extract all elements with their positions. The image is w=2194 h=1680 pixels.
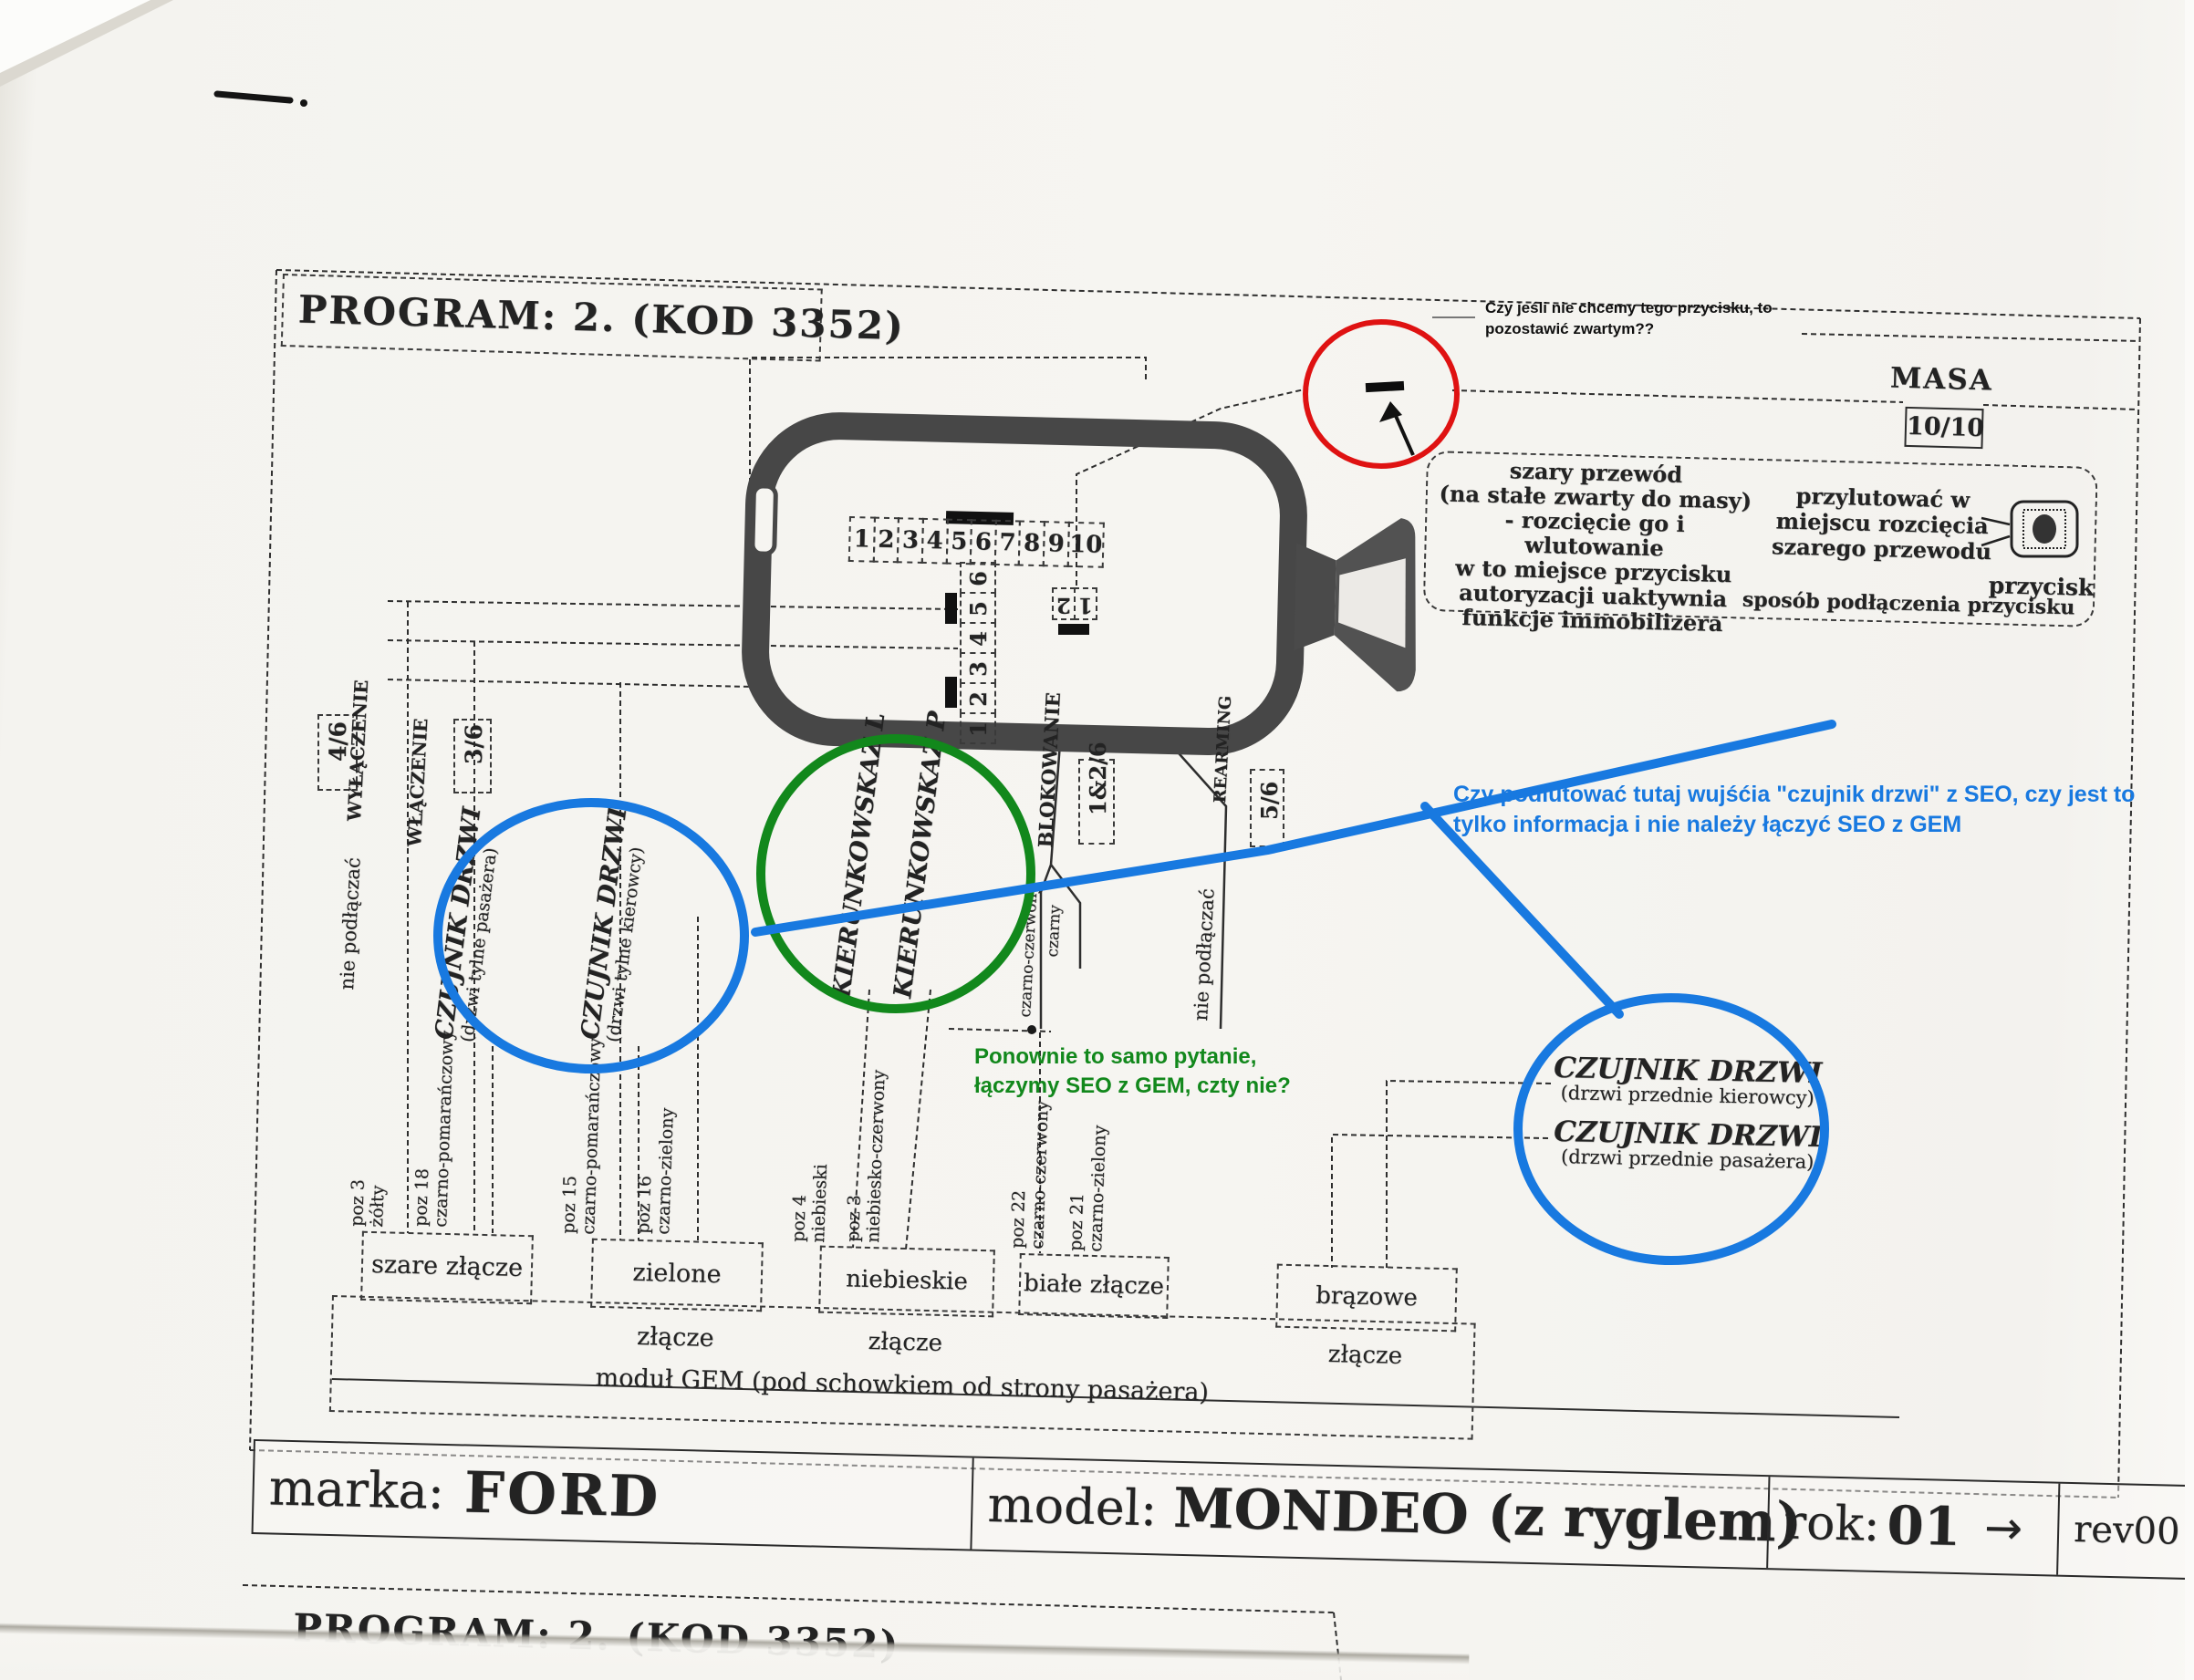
wlaczenie-pin: 3/6: [461, 724, 487, 764]
rearming-pin-box: 5/6: [1250, 769, 1284, 847]
rearming-pin: 5/6: [1256, 782, 1283, 820]
pin-cell: 1: [960, 712, 996, 744]
rev-cell: rev00: [2056, 1484, 2191, 1578]
wire-pos-label: poz 22 czarno-czerwony: [1007, 1100, 1053, 1250]
green-note: Ponownie to samo pytanie, łączymy SEO z …: [974, 1042, 1291, 1101]
connector-box-niebieskie: niebieskie złącze: [818, 1246, 995, 1318]
marka-label: marka:: [268, 1458, 445, 1520]
wire-h2: [388, 640, 958, 648]
info-box: szary przewód (na stałe zwarty do masy) …: [1423, 451, 2098, 627]
rok-arrow-icon: →: [1983, 1501, 2022, 1555]
wire-h1: [388, 601, 958, 609]
czarny-label: czarny: [1044, 905, 1065, 958]
front-driver-door-sensor-label: CZUJNIK DRZWI (drzwi przednie kierowcy): [1541, 1053, 1834, 1110]
model-cell: model: MONDEO (z ryglem): [970, 1458, 1768, 1569]
wire-masa-1: [1452, 390, 1903, 402]
model-label: model:: [987, 1475, 1158, 1536]
info-left-text: szary przewód (na stałe zwarty do masy) …: [1433, 456, 1755, 636]
frame-left-line: [250, 270, 276, 1450]
pin6-key-tab-2: [945, 677, 957, 708]
pin-cell: 5: [945, 519, 972, 565]
pen-mark-dot: [300, 99, 307, 107]
frame-right-line: [2118, 318, 2140, 1498]
info-right-text: przylutować w miejscu rozcięcia szarego …: [1762, 482, 2002, 565]
front-passenger-door-sensor-label: CZUJNIK DRZWI (drzwi przednie pasażera): [1541, 1117, 1834, 1174]
rev-value: rev00: [2074, 1509, 2180, 1553]
marka-cell: marka: FORD: [254, 1441, 972, 1549]
wire-pos-label: poz 3 niebiesko-czerwony: [843, 1069, 889, 1243]
pin-cell: 7: [994, 520, 1022, 566]
connector-2pin: 2 1: [1054, 587, 1097, 620]
wire-pos-label: poz 18 czarno-pomarańczowy: [411, 1030, 458, 1228]
pin2-key-tab: [1058, 624, 1089, 635]
scanned-wiring-diagram-page: PROGRAM: 2. (KOD 3352) MASA 10/10 szary …: [0, 0, 2194, 1680]
program-header-text: PROGRAM: 2. (KOD 3352): [297, 286, 905, 348]
pin-cell: 2: [1052, 587, 1076, 620]
wire-v8: [906, 990, 931, 1250]
pin-cell: 1: [1074, 587, 1097, 620]
pin-cell: 1: [848, 516, 876, 563]
pin-cell: 2: [872, 517, 899, 564]
wlaczenie-pin-box: 3/6: [453, 719, 492, 793]
module-notch: [753, 486, 776, 555]
page-right-edge: [2185, 0, 2194, 1680]
blokowanie-pin: 1&2/6: [1085, 741, 1111, 815]
pin-cell: 5: [960, 592, 996, 624]
masa-label: MASA: [1890, 362, 1994, 398]
gem-module-label: moduł GEM (pod schowkiem od strony pasaż…: [332, 1357, 1472, 1414]
connector-box-biale: białe złącze: [1018, 1253, 1170, 1319]
rok-value: 01: [1887, 1494, 1961, 1558]
wire-pos-label: poz 21 czarno-zielony: [1066, 1125, 1110, 1252]
connector-6pin: 6 5 4 3 2 1: [960, 564, 996, 744]
program-header-box: PROGRAM: 2. (KOD 3352): [281, 274, 823, 361]
model-value: MONDEO (z ryglem): [1172, 1477, 1803, 1555]
pin-cell: 8: [1018, 521, 1045, 567]
wire-masa-2: [1983, 405, 2138, 410]
wire-pos-label: poz 3 żółty: [347, 1179, 389, 1228]
marka-value: FORD: [463, 1458, 661, 1530]
top-right-line: [1802, 334, 2140, 341]
leader-front-driver: [1387, 1081, 1551, 1268]
wire-junction-dot: [1027, 1025, 1036, 1034]
pin6-key-tab-1: [945, 593, 957, 624]
masa-pin-box: 10/10: [1904, 407, 1983, 449]
blue-note: Czy podlutować tutaj wujśćia "czujnik dr…: [1453, 780, 2135, 840]
connector-box-zielone: zielone złącze: [590, 1239, 764, 1312]
alarm-module-outline: [748, 424, 1421, 747]
pin-cell: 4: [921, 518, 949, 565]
black-note: Czy jeśli nie chcemy tego przycisku, to …: [1485, 297, 1773, 339]
wire-pos-label: poz 16 czarno-zielony: [633, 1107, 678, 1235]
connector-10pin: 1 2 3 4 5 6 7 8 9 10: [850, 516, 1105, 568]
pin-cell: 9: [1043, 521, 1070, 567]
masa-pin: 10/10: [1907, 412, 1985, 442]
pin-cell: 10: [1066, 522, 1104, 568]
wire-h3: [388, 679, 754, 687]
blokowanie-pin-box: 1&2/6: [1078, 759, 1115, 845]
pin-cell: 3: [897, 517, 924, 564]
module-horn-neck: [1294, 543, 1336, 651]
leader-front-passenger: [1332, 1135, 1548, 1268]
pin-cell: 4: [960, 622, 996, 654]
wire-pos-label: poz 15 czarno-pomarańczowy: [558, 1037, 606, 1235]
rok-label: rok:: [1783, 1496, 1881, 1552]
connector-box-szare: szare złącze: [360, 1231, 534, 1305]
wire-to-button-cut: [1076, 389, 1308, 586]
wire-pos-label: poz 4 niebieski: [788, 1163, 831, 1243]
pin-cell: 3: [960, 652, 996, 684]
rok-cell: rok: 01 →: [1766, 1477, 2058, 1574]
pin-cell: 2: [960, 682, 996, 714]
pen-mark: [217, 94, 290, 100]
pin-cell: 6: [960, 562, 996, 594]
pin-cell: 6: [970, 519, 997, 565]
